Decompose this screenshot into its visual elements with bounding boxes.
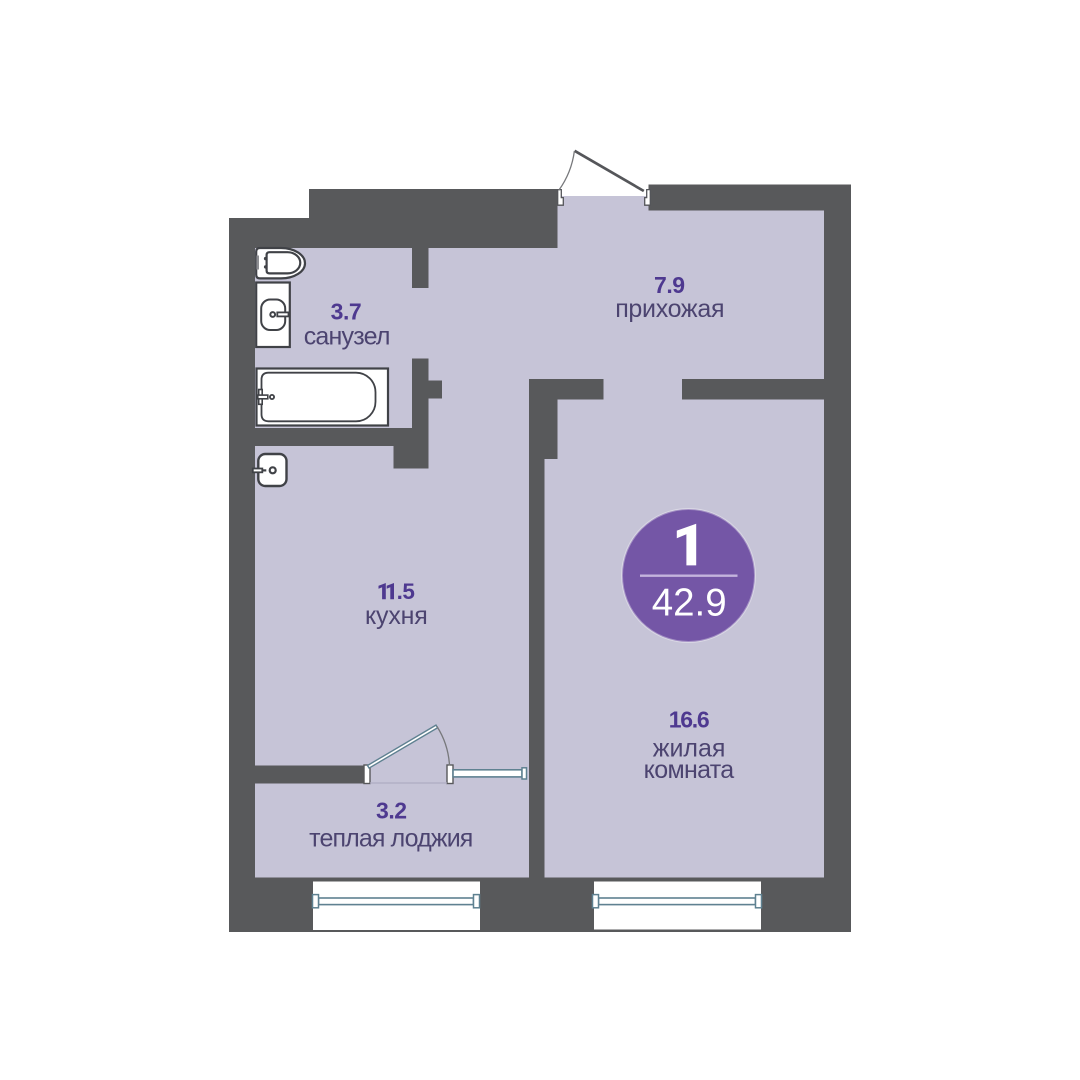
svg-text:кухня: кухня xyxy=(365,602,428,630)
svg-text:3.2: 3.2 xyxy=(376,797,406,823)
svg-text:теплая лоджия: теплая лоджия xyxy=(309,825,472,853)
svg-text:42.9: 42.9 xyxy=(652,582,727,625)
svg-text:.5: .5 xyxy=(397,579,415,604)
svg-text:прихожая: прихожая xyxy=(615,295,724,323)
svg-text:санузел: санузел xyxy=(304,322,390,350)
svg-text:3.7: 3.7 xyxy=(331,299,361,325)
svg-text:комната: комната xyxy=(644,756,735,784)
svg-text:16.6: 16.6 xyxy=(669,706,709,732)
